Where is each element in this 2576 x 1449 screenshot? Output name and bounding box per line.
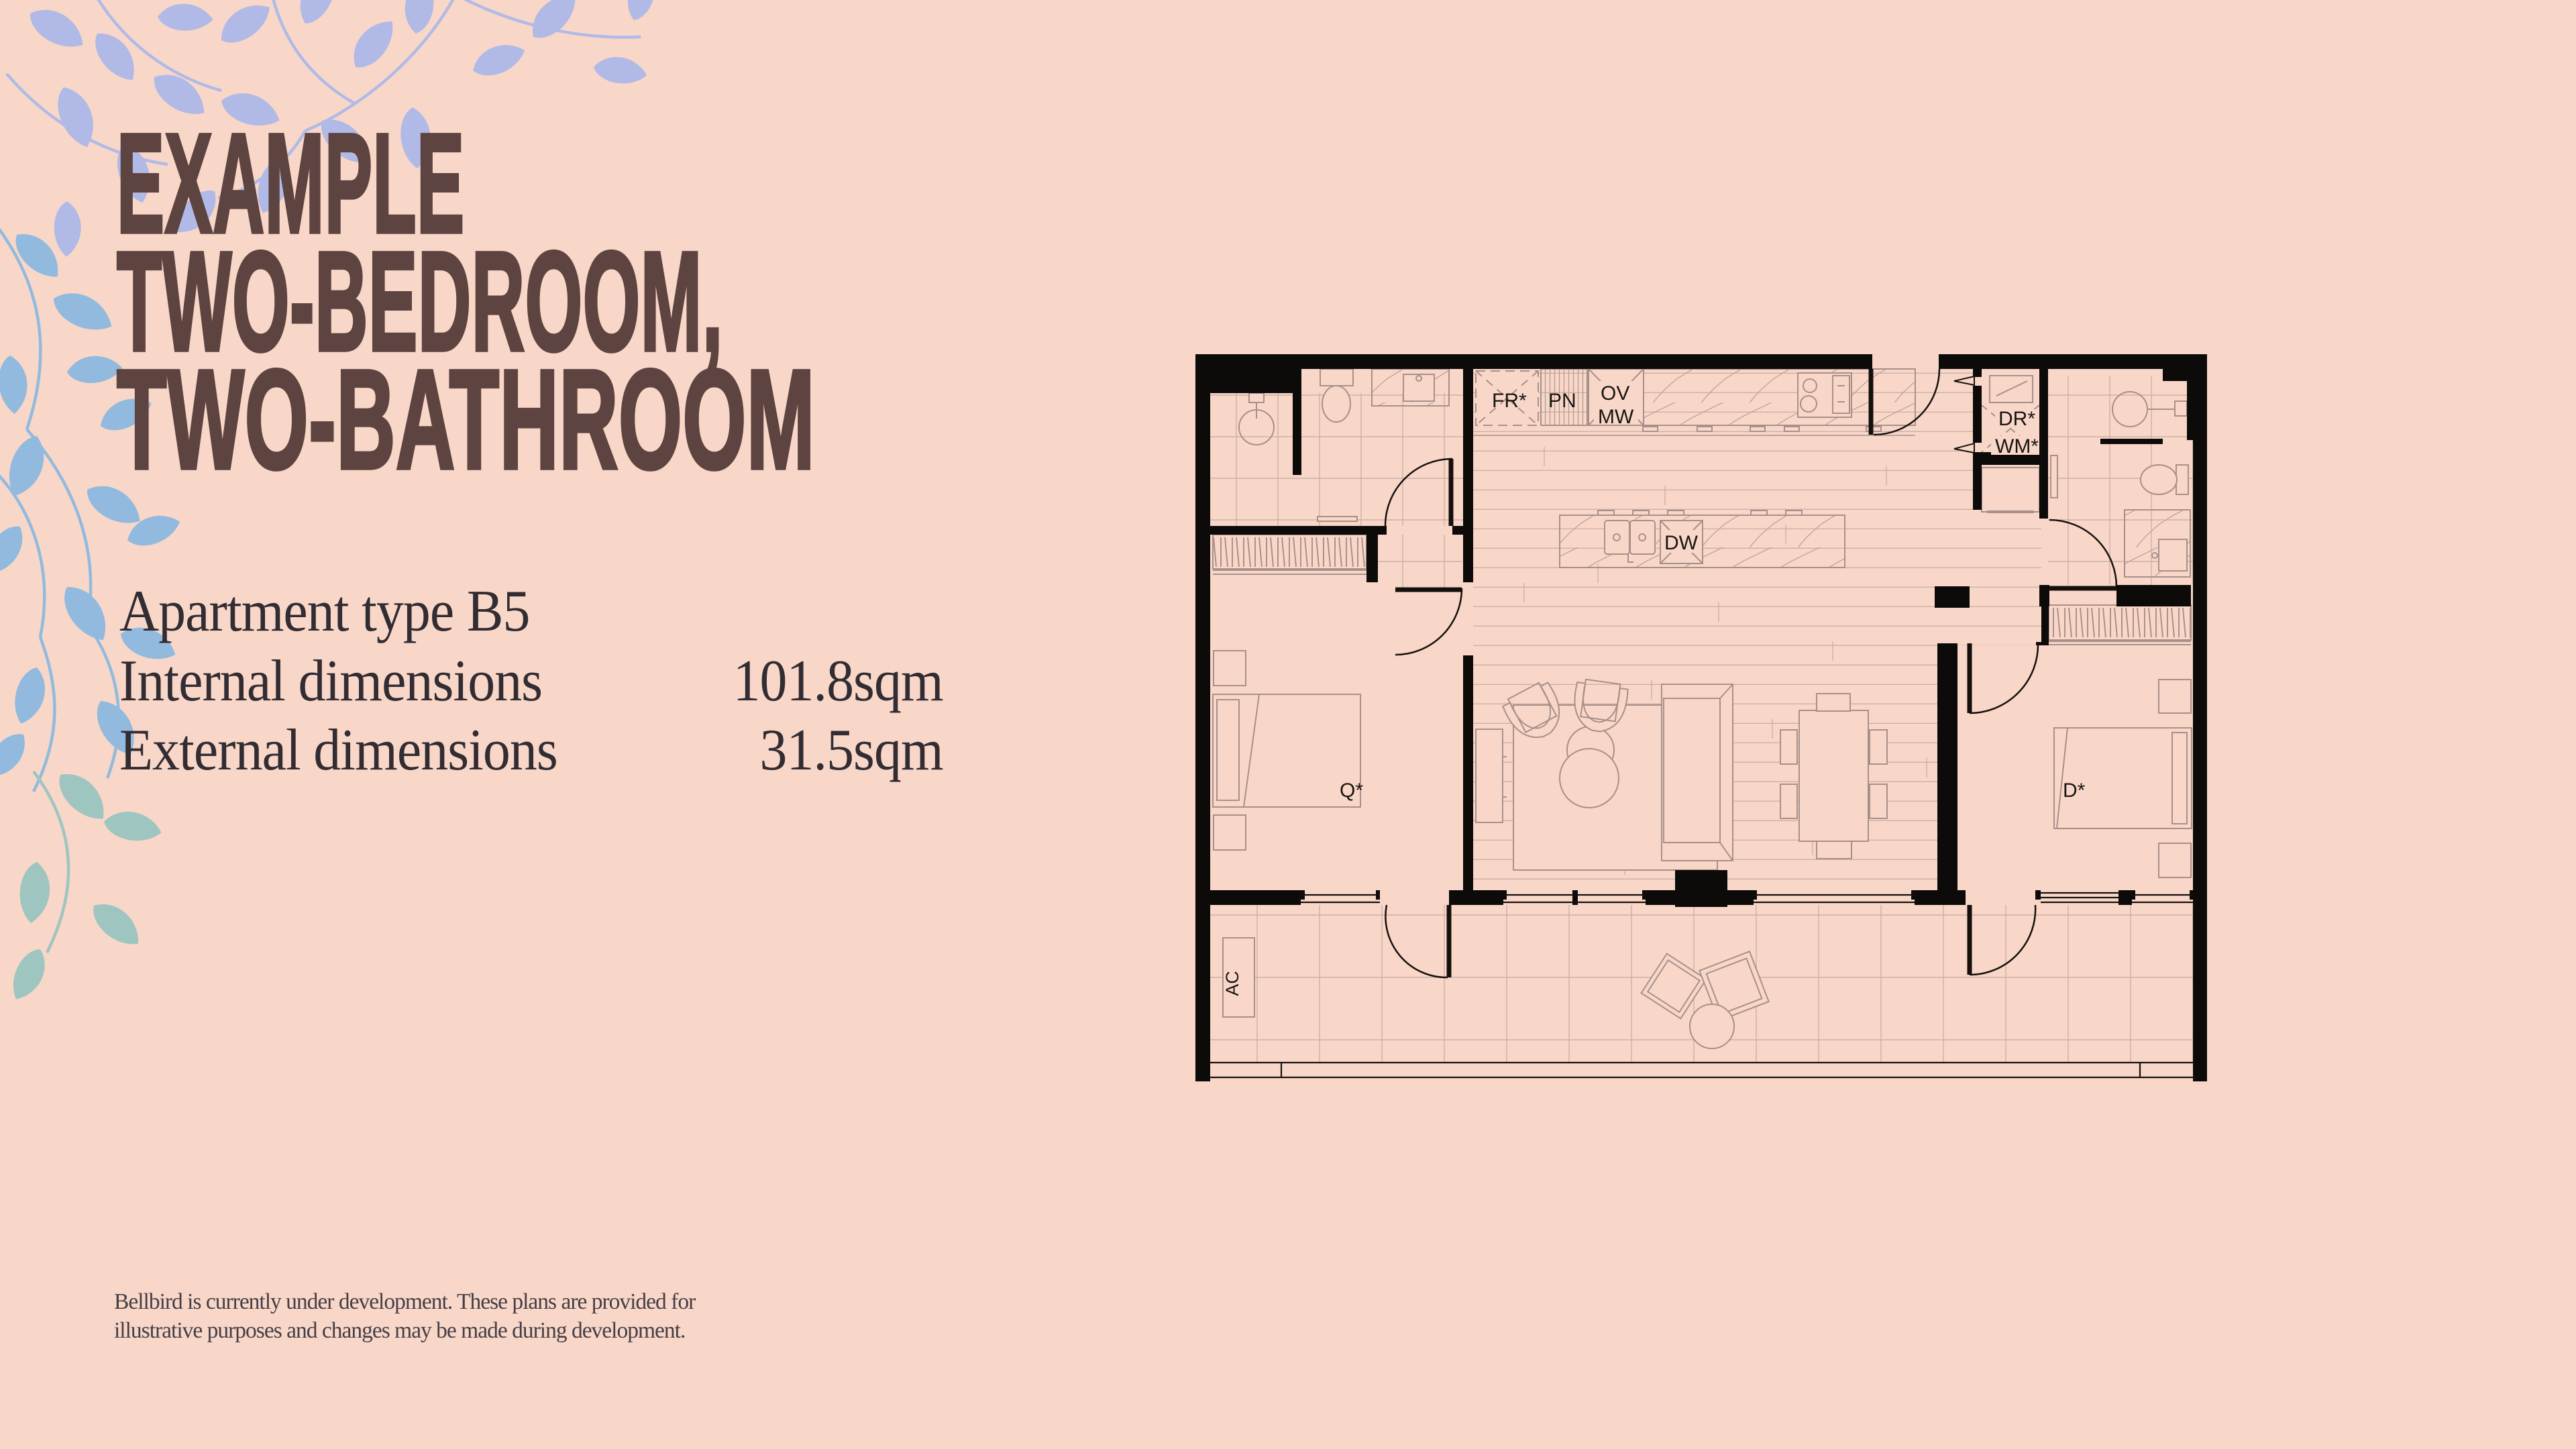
svg-text:OV: OV xyxy=(1601,382,1629,405)
svg-text:Q*: Q* xyxy=(1340,780,1363,802)
svg-text:PN: PN xyxy=(1548,390,1576,412)
svg-text:DW: DW xyxy=(1664,532,1699,554)
svg-text:DR*: DR* xyxy=(1998,408,2035,430)
svg-text:FR*: FR* xyxy=(1492,390,1527,412)
svg-text:MW: MW xyxy=(1598,406,1634,428)
svg-text:D*: D* xyxy=(2063,780,2086,802)
svg-text:AC: AC xyxy=(1222,971,1242,996)
svg-text:WM*: WM* xyxy=(1995,435,2039,458)
